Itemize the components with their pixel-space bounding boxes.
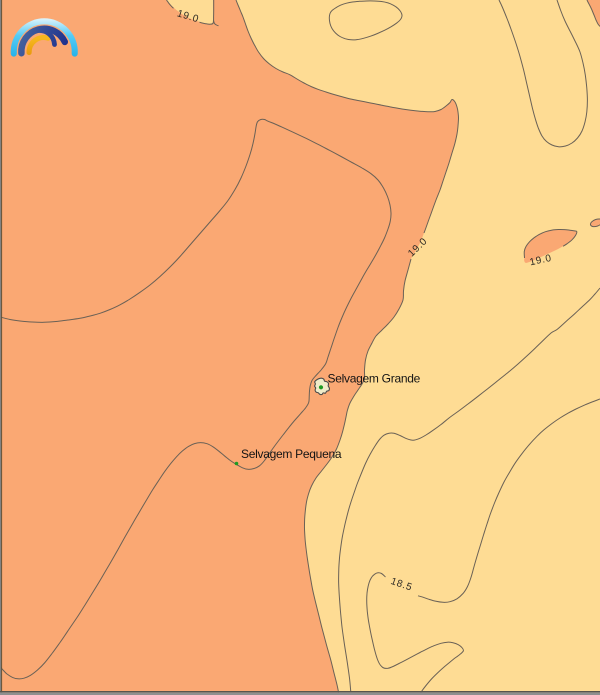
svg-text:Selvagem Pequena: Selvagem Pequena xyxy=(241,447,342,461)
svg-text:Selvagem Grande: Selvagem Grande xyxy=(328,372,421,386)
